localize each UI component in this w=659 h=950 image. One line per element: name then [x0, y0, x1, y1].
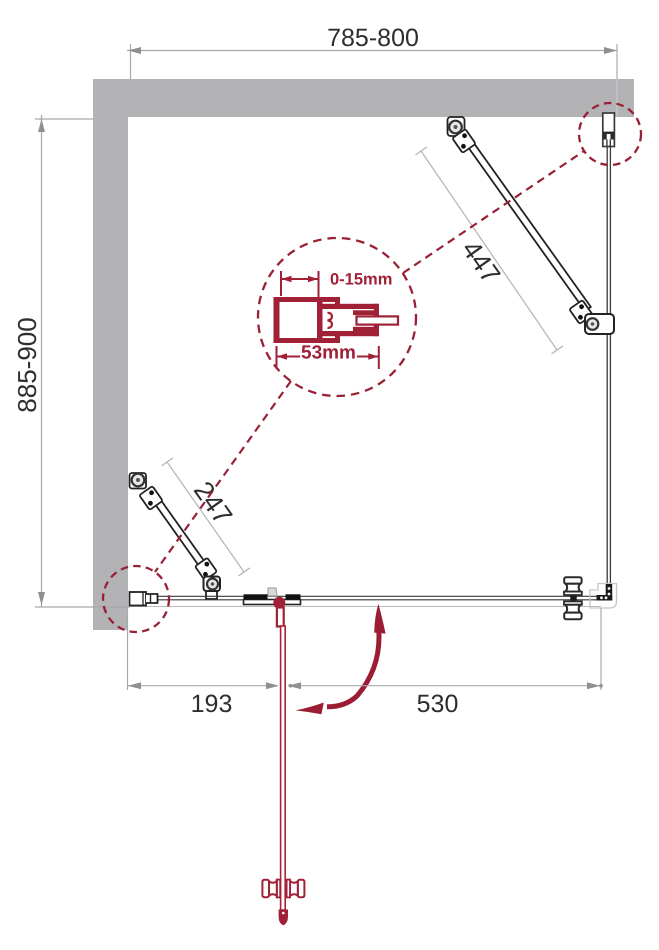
- svg-text:885-900: 885-900: [12, 317, 42, 412]
- svg-text:193: 193: [191, 690, 233, 718]
- svg-text:530: 530: [417, 690, 459, 718]
- svg-text:0-15mm: 0-15mm: [330, 271, 392, 289]
- svg-text:53mm: 53mm: [301, 343, 356, 364]
- svg-text:785-800: 785-800: [327, 24, 419, 52]
